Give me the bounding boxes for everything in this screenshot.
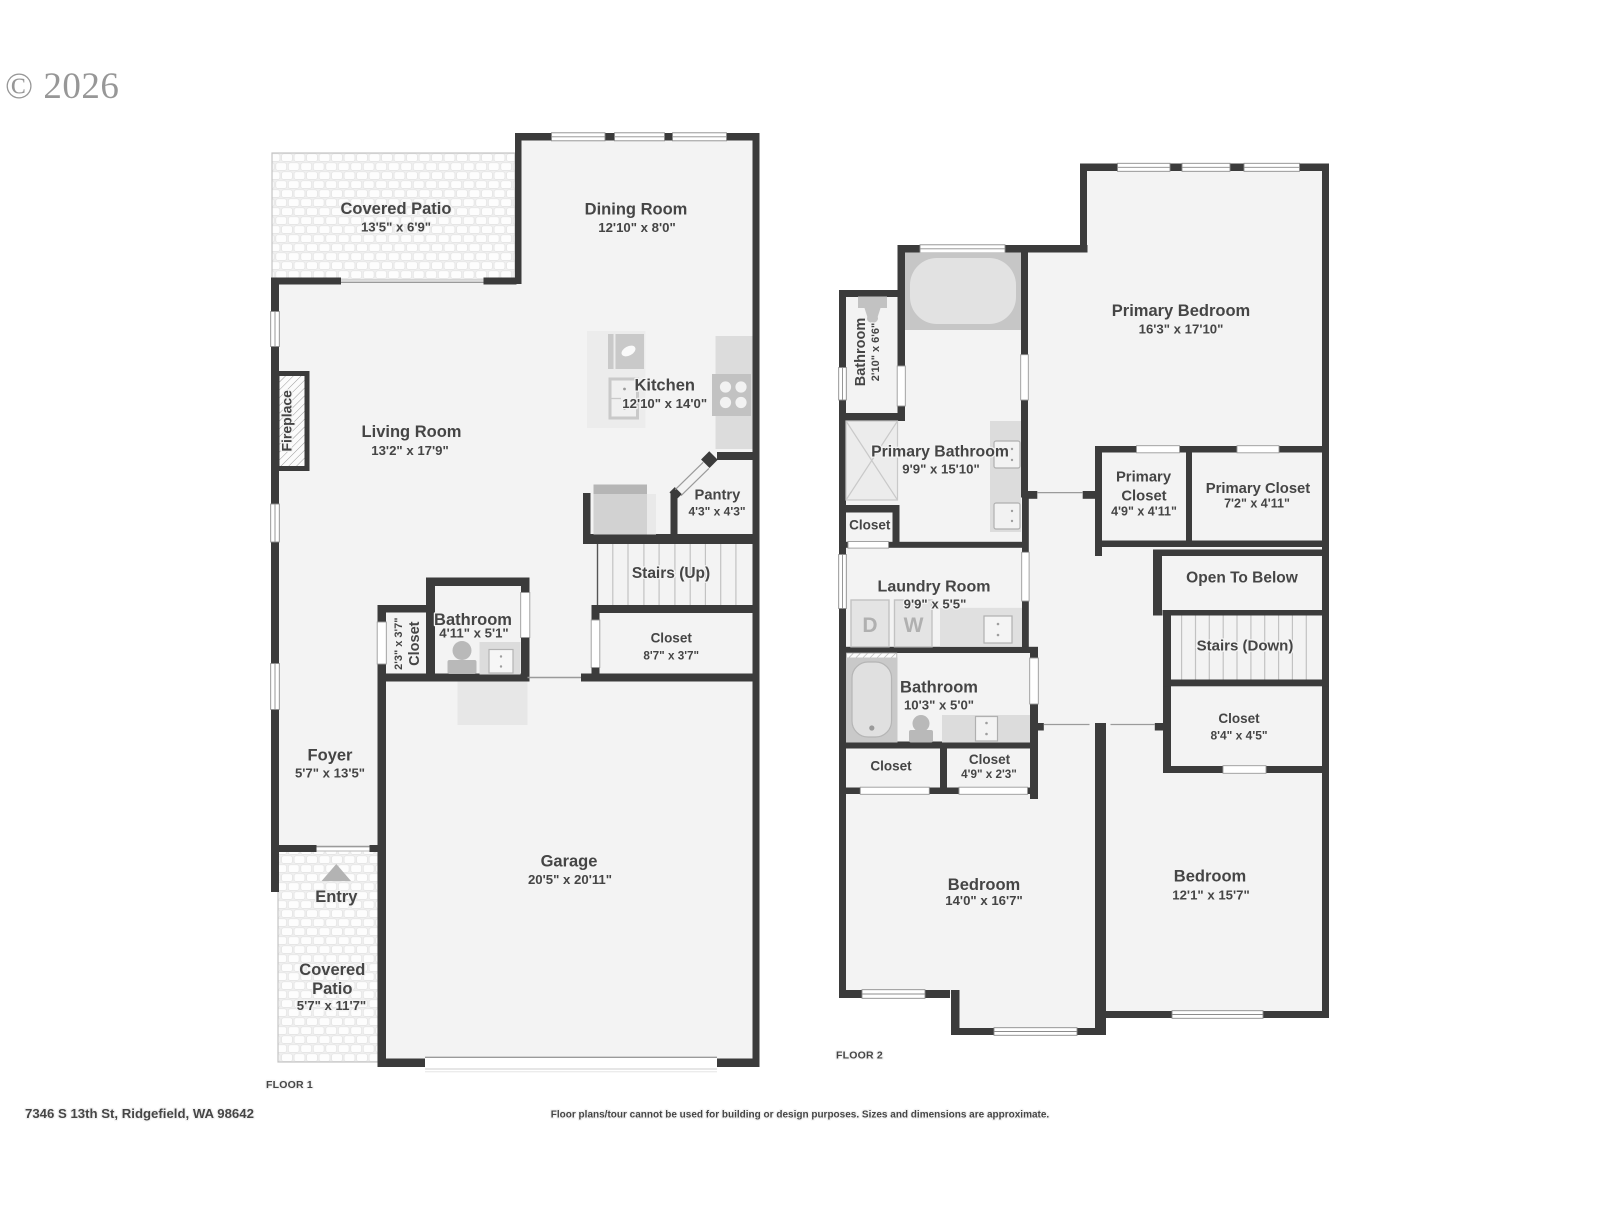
svg-text:Covered: Covered [299, 961, 365, 979]
svg-text:FLOOR 1: FLOOR 1 [266, 1079, 313, 1091]
svg-text:Bathroom: Bathroom [900, 679, 978, 697]
svg-text:D: D [862, 614, 877, 637]
svg-text:Bedroom: Bedroom [948, 876, 1020, 894]
svg-text:12'1" x 15'7": 12'1" x 15'7" [1172, 888, 1249, 903]
svg-text:Stairs (Up): Stairs (Up) [632, 565, 710, 582]
svg-text:Primary Bedroom: Primary Bedroom [1112, 302, 1250, 320]
svg-text:4'9" x 4'11": 4'9" x 4'11" [1111, 505, 1177, 519]
svg-text:4'9" x 2'3": 4'9" x 2'3" [961, 768, 1017, 781]
svg-text:Closet: Closet [1218, 711, 1260, 726]
svg-text:Primary: Primary [1116, 470, 1172, 486]
svg-text:16'3" x 17'10": 16'3" x 17'10" [1139, 322, 1224, 337]
svg-text:Closet: Closet [651, 631, 693, 646]
svg-text:Bedroom: Bedroom [1174, 868, 1246, 886]
svg-text:13'2" x 17'9": 13'2" x 17'9" [371, 443, 448, 458]
svg-text:Foyer: Foyer [308, 747, 354, 765]
svg-text:Primary Bathroom: Primary Bathroom [871, 444, 1009, 461]
svg-text:Closet: Closet [870, 759, 912, 774]
svg-text:Living Room: Living Room [362, 423, 462, 441]
svg-text:W: W [904, 614, 924, 637]
svg-text:Laundry Room: Laundry Room [878, 579, 991, 596]
svg-text:Open To Below: Open To Below [1186, 570, 1299, 587]
svg-text:© 2026: © 2026 [5, 66, 119, 107]
svg-text:7346 S 13th St, Ridgefield, WA: 7346 S 13th St, Ridgefield, WA 98642 [25, 1106, 254, 1121]
svg-text:Closet: Closet [407, 621, 423, 665]
svg-text:2'3" x 3'7": 2'3" x 3'7" [393, 618, 405, 670]
svg-text:5'7" x 11'7": 5'7" x 11'7" [297, 998, 366, 1013]
svg-text:Closet: Closet [969, 752, 1011, 767]
svg-text:4'3" x 4'3": 4'3" x 4'3" [688, 505, 745, 519]
svg-text:FLOOR 2: FLOOR 2 [836, 1050, 883, 1062]
svg-text:Patio: Patio [312, 980, 352, 998]
svg-text:8'4" x 4'5": 8'4" x 4'5" [1210, 729, 1267, 743]
svg-text:Bathroom: Bathroom [853, 318, 869, 386]
svg-text:2'10" x 6'6": 2'10" x 6'6" [870, 323, 882, 381]
svg-text:8'7" x 3'7": 8'7" x 3'7" [643, 650, 699, 663]
svg-text:Fireplace: Fireplace [279, 390, 295, 452]
svg-text:Dining Room: Dining Room [585, 201, 688, 219]
svg-text:5'7" x 13'5": 5'7" x 13'5" [295, 766, 365, 781]
svg-text:Entry: Entry [315, 888, 358, 906]
svg-text:Kitchen: Kitchen [634, 377, 695, 395]
svg-text:Primary Closet: Primary Closet [1206, 481, 1311, 497]
svg-text:Closet: Closet [1121, 489, 1166, 505]
svg-text:12'10" x 8'0": 12'10" x 8'0" [598, 220, 675, 235]
svg-text:14'0" x 16'7": 14'0" x 16'7" [945, 893, 1022, 908]
svg-text:Closet: Closet [849, 518, 891, 533]
svg-text:20'5" x 20'11": 20'5" x 20'11" [528, 872, 612, 887]
svg-text:Garage: Garage [541, 853, 598, 871]
svg-text:9'9" x 15'10": 9'9" x 15'10" [902, 462, 979, 477]
svg-text:7'2" x 4'11": 7'2" x 4'11" [1224, 497, 1290, 511]
svg-text:12'10" x 14'0": 12'10" x 14'0" [622, 396, 707, 411]
svg-text:9'9" x 5'5": 9'9" x 5'5" [904, 597, 967, 612]
svg-text:10'3" x 5'0": 10'3" x 5'0" [904, 698, 974, 713]
svg-text:13'5" x 6'9": 13'5" x 6'9" [361, 220, 431, 235]
svg-text:Pantry: Pantry [695, 488, 742, 504]
svg-text:4'11" x 5'1": 4'11" x 5'1" [439, 626, 508, 641]
svg-text:Stairs (Down): Stairs (Down) [1197, 638, 1294, 655]
svg-text:Floor plans/tour cannot be use: Floor plans/tour cannot be used for buil… [551, 1110, 1050, 1121]
svg-text:Covered Patio: Covered Patio [341, 200, 452, 218]
